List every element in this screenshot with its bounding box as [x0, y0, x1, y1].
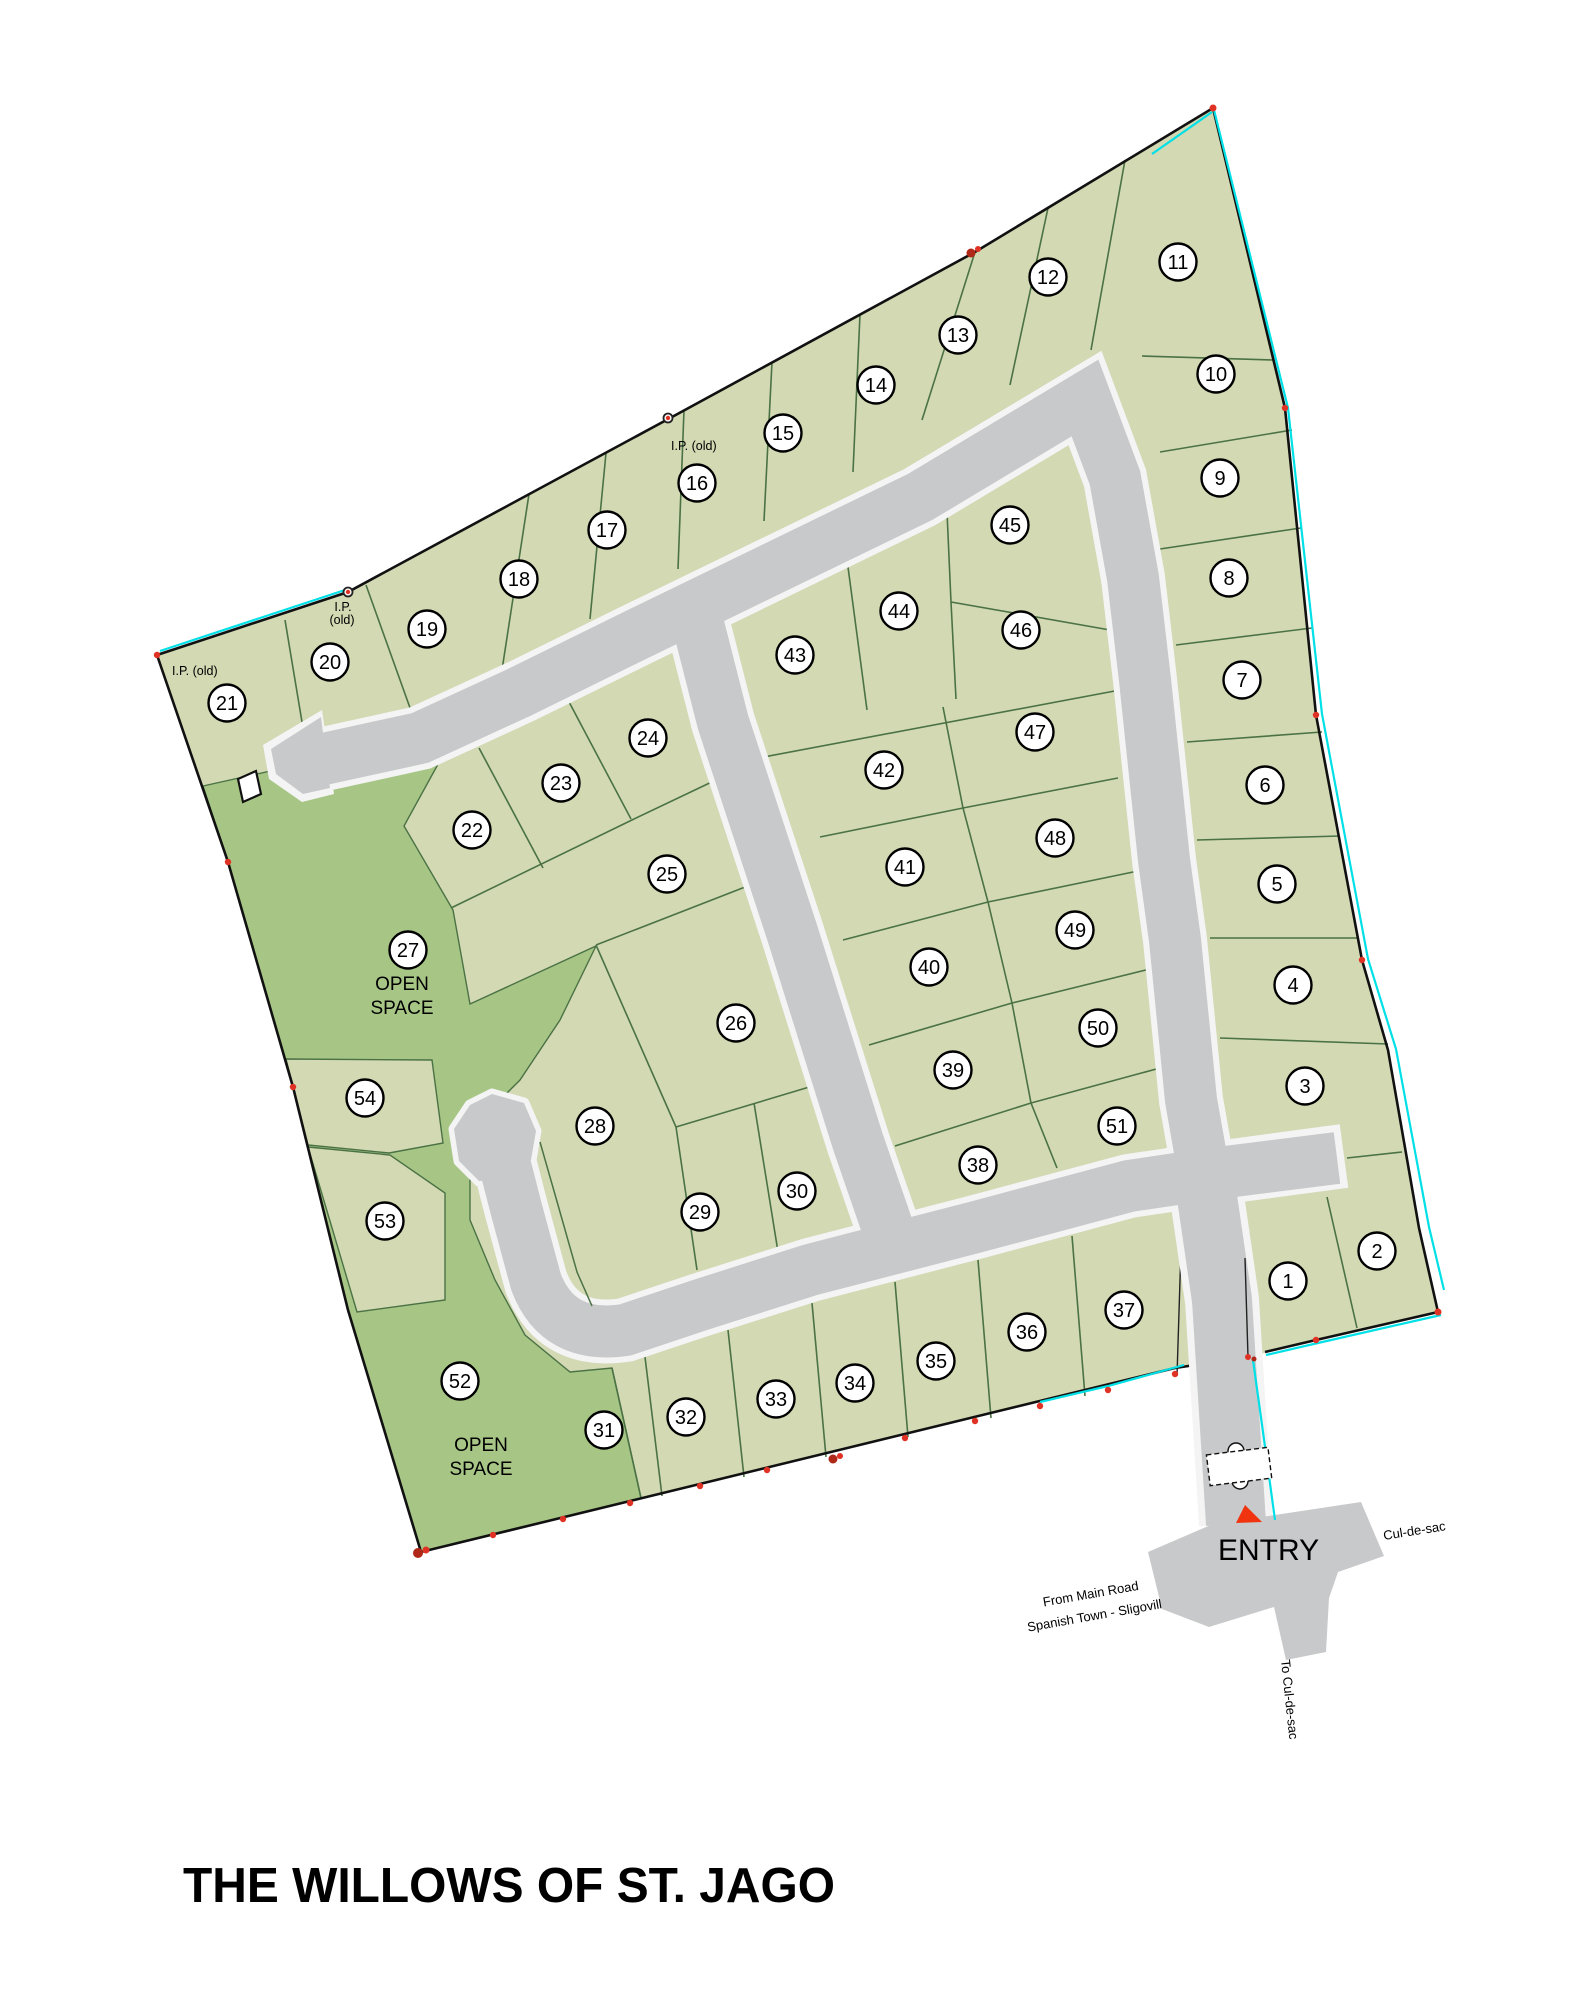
svg-text:25: 25 — [656, 864, 678, 886]
svg-text:15: 15 — [772, 423, 794, 445]
svg-text:36: 36 — [1016, 1322, 1038, 1344]
svg-text:6: 6 — [1259, 775, 1270, 797]
svg-text:38: 38 — [967, 1155, 989, 1177]
svg-text:32: 32 — [675, 1407, 697, 1429]
svg-text:4: 4 — [1287, 975, 1298, 997]
svg-text:28: 28 — [584, 1116, 606, 1138]
svg-text:50: 50 — [1087, 1018, 1109, 1040]
svg-text:20: 20 — [319, 652, 341, 674]
svg-text:40: 40 — [918, 957, 940, 979]
svg-text:To Cul-de-sac: To Cul-de-sac — [1278, 1659, 1301, 1741]
svg-text:OPEN: OPEN — [454, 1435, 508, 1456]
svg-text:53: 53 — [374, 1211, 396, 1233]
svg-text:22: 22 — [461, 820, 483, 842]
svg-text:SPACE: SPACE — [449, 1459, 512, 1480]
svg-text:(old): (old) — [329, 613, 354, 627]
svg-text:11: 11 — [1168, 252, 1189, 274]
svg-text:14: 14 — [865, 375, 887, 397]
svg-text:THE WILLOWS OF ST. JAGO: THE WILLOWS OF ST. JAGO — [183, 1859, 835, 1913]
svg-text:10: 10 — [1205, 364, 1227, 386]
svg-text:46: 46 — [1010, 620, 1032, 642]
svg-text:52: 52 — [449, 1371, 471, 1393]
svg-text:29: 29 — [689, 1202, 711, 1224]
svg-text:47: 47 — [1024, 722, 1046, 744]
svg-text:1: 1 — [1282, 1271, 1293, 1293]
svg-text:43: 43 — [784, 645, 806, 667]
svg-text:13: 13 — [947, 325, 969, 347]
svg-text:49: 49 — [1064, 920, 1086, 942]
svg-text:24: 24 — [637, 728, 659, 750]
svg-text:2: 2 — [1371, 1241, 1382, 1263]
svg-text:I.P. (old): I.P. (old) — [671, 439, 717, 453]
svg-text:OPEN: OPEN — [375, 974, 429, 995]
svg-text:Cul-de-sac: Cul-de-sac — [1382, 1518, 1447, 1543]
svg-text:5: 5 — [1271, 874, 1282, 896]
svg-text:34: 34 — [844, 1373, 866, 1395]
svg-text:8: 8 — [1223, 568, 1234, 590]
svg-text:17: 17 — [596, 520, 618, 542]
svg-text:48: 48 — [1044, 828, 1066, 850]
svg-text:51: 51 — [1106, 1116, 1128, 1138]
svg-text:9: 9 — [1214, 468, 1225, 490]
svg-text:12: 12 — [1037, 267, 1059, 289]
svg-text:7: 7 — [1236, 670, 1247, 692]
svg-text:39: 39 — [942, 1060, 964, 1082]
svg-text:44: 44 — [888, 601, 910, 623]
svg-text:18: 18 — [508, 569, 530, 591]
svg-text:26: 26 — [725, 1013, 747, 1035]
svg-text:I.P. (old): I.P. (old) — [172, 664, 218, 678]
svg-text:54: 54 — [354, 1088, 376, 1110]
svg-text:SPACE: SPACE — [370, 998, 433, 1019]
svg-text:31: 31 — [593, 1420, 615, 1442]
svg-text:35: 35 — [925, 1351, 947, 1373]
svg-text:I.P.: I.P. — [334, 600, 351, 614]
svg-text:42: 42 — [873, 760, 895, 782]
svg-text:27: 27 — [397, 940, 419, 962]
svg-text:30: 30 — [786, 1181, 808, 1203]
svg-text:37: 37 — [1113, 1300, 1135, 1322]
svg-text:ENTRY: ENTRY — [1218, 1534, 1319, 1567]
svg-text:45: 45 — [999, 515, 1021, 537]
svg-text:33: 33 — [765, 1389, 787, 1411]
svg-text:19: 19 — [416, 619, 438, 641]
svg-text:21: 21 — [216, 693, 238, 715]
svg-text:23: 23 — [550, 773, 572, 795]
svg-text:16: 16 — [686, 473, 708, 495]
svg-text:41: 41 — [894, 857, 916, 879]
svg-text:3: 3 — [1299, 1076, 1310, 1098]
